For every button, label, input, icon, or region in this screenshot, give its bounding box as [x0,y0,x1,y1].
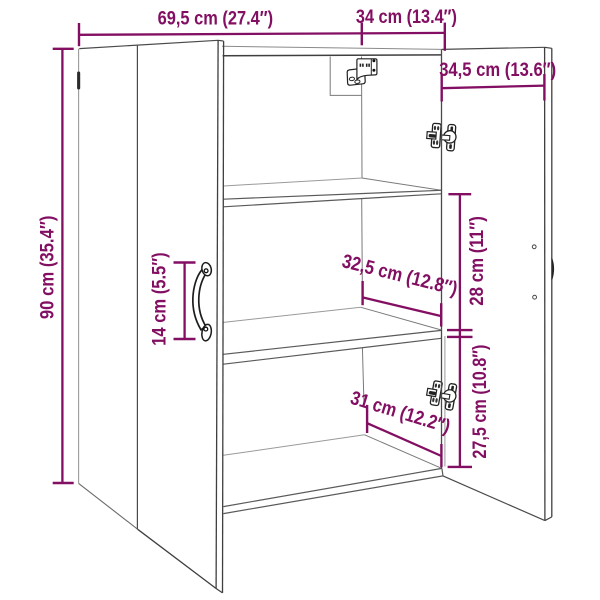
svg-text:27,5 cm (10.8″): 27,5 cm (10.8″) [469,345,491,459]
svg-text:14 cm (5.5″): 14 cm (5.5″) [148,252,170,346]
svg-text:34,5 cm (13.6″): 34,5 cm (13.6″) [439,59,556,81]
svg-text:69,5 cm (27.4″): 69,5 cm (27.4″) [158,8,274,30]
svg-text:90 cm (35.4″): 90 cm (35.4″) [36,216,58,320]
svg-text:28 cm (11″): 28 cm (11″) [466,216,488,306]
svg-text:34 cm (13.4″): 34 cm (13.4″) [356,6,457,28]
